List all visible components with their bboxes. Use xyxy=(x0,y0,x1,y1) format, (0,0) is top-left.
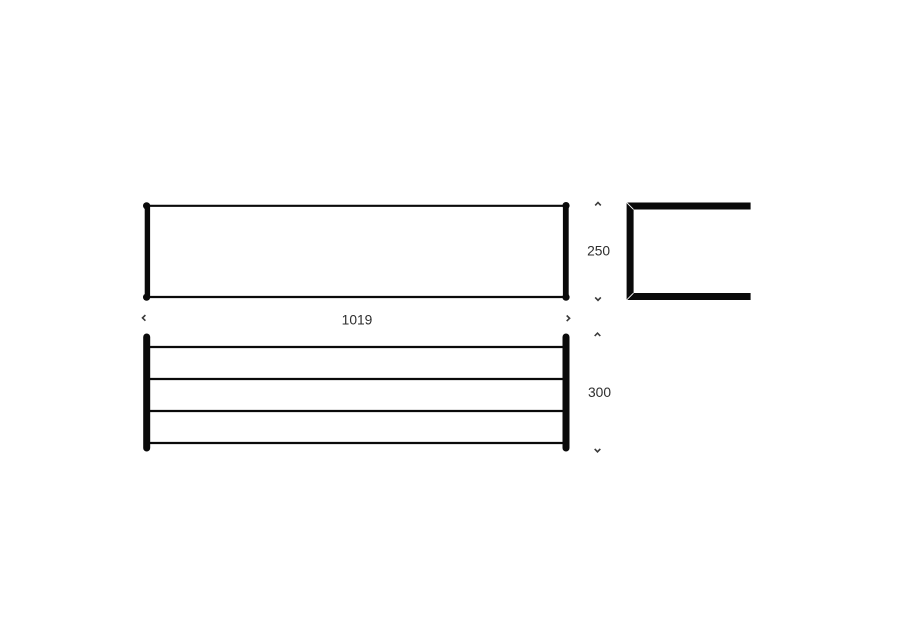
svg-text:250: 250 xyxy=(587,243,610,258)
svg-text:300: 300 xyxy=(588,385,611,400)
svg-text:1019: 1019 xyxy=(342,312,373,327)
